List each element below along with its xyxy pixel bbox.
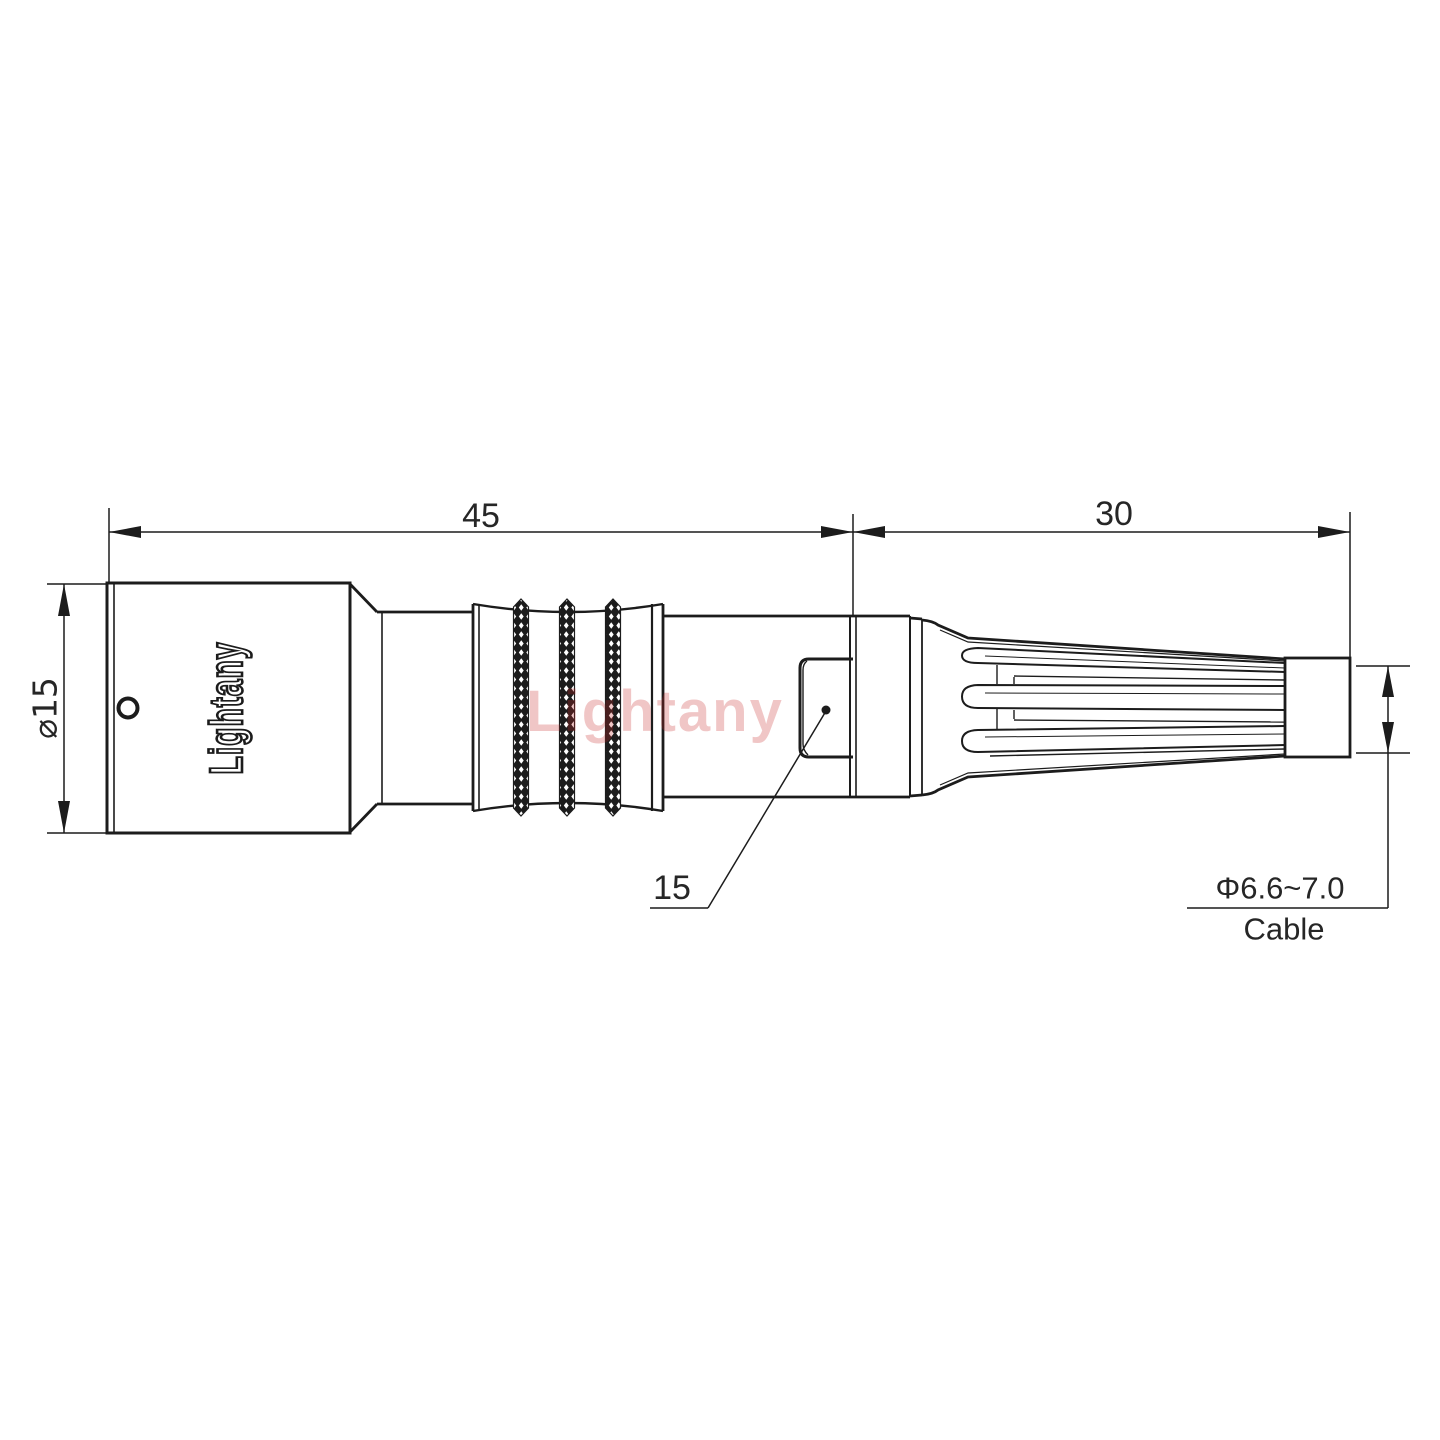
dim-boot-length-text: 30 [1095,497,1133,531]
cable-label: Cable [1244,914,1325,945]
cable-end-cap [1285,658,1350,757]
arrowhead-right-45 [821,526,853,538]
neck-left [377,612,473,804]
brand-watermark: Lightany [526,683,784,741]
arrowhead-left-30 [853,526,885,538]
chamfer-top [350,584,377,612]
dim-body-diameter-text: ⌀15 [29,677,62,739]
arrowhead-down [1382,722,1394,753]
arrowhead-left-45 [109,526,141,538]
arrowhead-up [1382,666,1394,697]
arrowhead-down [58,801,70,833]
latch-point-marker [822,706,831,715]
cable-diameter-label: Φ6.6~7.0 [1215,873,1344,904]
brand-engraving: Lightany [205,642,252,775]
boot-fin-3 [962,726,1285,752]
strain-relief-boot [910,618,1285,796]
boot-fin-2 [962,685,1285,710]
arrowhead-right-30 [1318,526,1350,538]
end-cap [1285,658,1350,757]
boot-outer-bottom [922,756,1285,795]
dim-body-length-text: 45 [462,499,500,533]
technical-drawing-canvas: 45 30 ⌀15 15 Φ6.6~7.0 Cable Lightany Lig… [0,0,1440,1440]
chamfer-bottom [350,804,377,832]
latch-ref-label: 15 [653,871,691,905]
arrowhead-up [58,584,70,616]
